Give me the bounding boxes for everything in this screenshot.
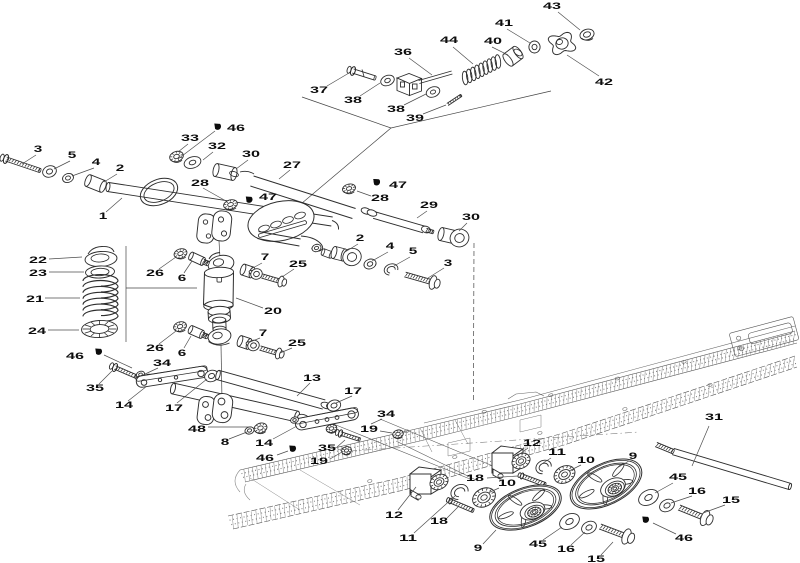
svg-text:37: 37 (310, 84, 328, 95)
svg-text:45: 45 (529, 538, 547, 549)
svg-text:21: 21 (26, 293, 44, 304)
svg-text:38: 38 (344, 94, 362, 105)
svg-text:18: 18 (430, 515, 448, 526)
svg-text:11: 11 (399, 532, 417, 543)
svg-text:16: 16 (557, 543, 575, 554)
svg-text:45: 45 (669, 471, 687, 482)
svg-text:35: 35 (86, 382, 104, 393)
svg-text:47: 47 (389, 179, 407, 190)
svg-text:34: 34 (153, 357, 172, 368)
svg-text:15: 15 (722, 494, 740, 505)
svg-text:48: 48 (188, 423, 206, 434)
svg-text:18: 18 (466, 472, 484, 483)
svg-text:34: 34 (377, 408, 396, 419)
svg-text:46: 46 (227, 122, 245, 133)
svg-text:5: 5 (409, 245, 418, 256)
svg-text:6: 6 (178, 272, 187, 283)
svg-text:2: 2 (116, 162, 125, 173)
svg-text:7: 7 (261, 251, 270, 262)
svg-text:38: 38 (387, 103, 405, 114)
svg-text:30: 30 (242, 148, 260, 159)
svg-text:31: 31 (705, 411, 723, 422)
svg-text:14: 14 (115, 399, 134, 410)
svg-text:40: 40 (484, 35, 502, 46)
svg-text:17: 17 (344, 385, 362, 396)
svg-text:20: 20 (264, 305, 282, 316)
svg-text:28: 28 (191, 177, 209, 188)
svg-text:42: 42 (595, 76, 613, 87)
svg-text:3: 3 (444, 257, 453, 268)
svg-text:27: 27 (283, 159, 301, 170)
svg-text:8: 8 (221, 436, 230, 447)
svg-text:4: 4 (92, 156, 102, 167)
svg-text:12: 12 (385, 509, 403, 520)
svg-text:19: 19 (310, 455, 328, 466)
svg-text:46: 46 (675, 532, 693, 543)
svg-text:16: 16 (688, 485, 706, 496)
svg-text:30: 30 (462, 211, 480, 222)
svg-text:25: 25 (289, 258, 307, 269)
svg-text:19: 19 (360, 423, 378, 434)
svg-text:29: 29 (420, 199, 438, 210)
svg-text:26: 26 (146, 342, 164, 353)
svg-text:23: 23 (29, 267, 47, 278)
svg-text:2: 2 (356, 232, 365, 243)
svg-text:9: 9 (474, 542, 483, 553)
svg-text:11: 11 (548, 446, 566, 457)
svg-text:14: 14 (255, 437, 274, 448)
svg-text:24: 24 (28, 325, 47, 336)
svg-text:43: 43 (543, 0, 561, 11)
svg-text:39: 39 (406, 112, 424, 123)
svg-text:10: 10 (577, 454, 595, 465)
svg-text:12: 12 (523, 437, 541, 448)
svg-text:25: 25 (288, 337, 306, 348)
svg-text:4: 4 (386, 240, 396, 251)
svg-text:15: 15 (587, 553, 605, 563)
svg-text:26: 26 (146, 267, 164, 278)
svg-text:28: 28 (371, 192, 389, 203)
svg-text:10: 10 (498, 477, 516, 488)
svg-text:46: 46 (256, 452, 274, 463)
svg-text:5: 5 (68, 149, 77, 160)
svg-text:46: 46 (66, 350, 84, 361)
svg-text:13: 13 (303, 372, 321, 383)
svg-text:41: 41 (495, 17, 513, 28)
svg-text:33: 33 (181, 132, 199, 143)
svg-text:44: 44 (440, 34, 459, 45)
svg-text:47: 47 (259, 191, 277, 202)
svg-text:22: 22 (29, 254, 47, 265)
svg-text:17: 17 (165, 402, 183, 413)
svg-text:36: 36 (394, 46, 412, 57)
svg-text:35: 35 (318, 442, 336, 453)
svg-text:7: 7 (259, 327, 268, 338)
svg-text:32: 32 (208, 140, 226, 151)
svg-text:9: 9 (629, 450, 638, 461)
svg-text:6: 6 (178, 347, 187, 358)
svg-text:3: 3 (34, 143, 43, 154)
